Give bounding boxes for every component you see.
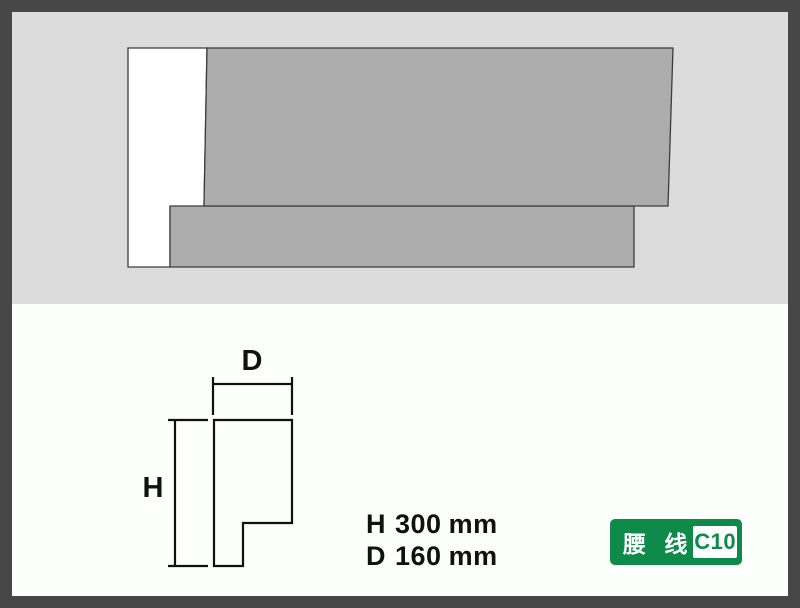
- catalog-card-frame: D H H 300 mm D 160 mm 腰 线: [0, 0, 800, 608]
- product-code: C10: [694, 529, 736, 555]
- spec-diagram-panel: D H H 300 mm D 160 mm 腰 线: [12, 304, 788, 596]
- molding-top-slab: [204, 48, 673, 206]
- spec-value-d: 160: [395, 540, 442, 572]
- molding-3d-render: [12, 12, 788, 304]
- product-photo-panel: [12, 12, 788, 304]
- d-dimension-label: D: [242, 345, 263, 377]
- category-badge: 腰 线 C10: [610, 519, 742, 565]
- spec-row-height: H 300 mm: [366, 508, 498, 540]
- spec-unit-h: mm: [449, 508, 498, 540]
- spec-unit-d: mm: [449, 540, 498, 572]
- dimension-specs: H 300 mm D 160 mm: [366, 508, 498, 572]
- profile-outline: [214, 420, 292, 566]
- spec-value-h: 300: [395, 508, 442, 540]
- catalog-card: D H H 300 mm D 160 mm 腰 线: [12, 12, 788, 596]
- spec-row-depth: D 160 mm: [366, 540, 498, 572]
- molding-bottom-slab: [170, 206, 634, 267]
- product-code-box: C10: [693, 526, 737, 558]
- spec-label-h: H: [366, 508, 390, 540]
- profile-drawing-lines: [168, 377, 292, 566]
- spec-label-d: D: [366, 540, 390, 572]
- category-badge-label: 腰 线: [623, 525, 693, 559]
- h-dimension-label: H: [143, 472, 164, 504]
